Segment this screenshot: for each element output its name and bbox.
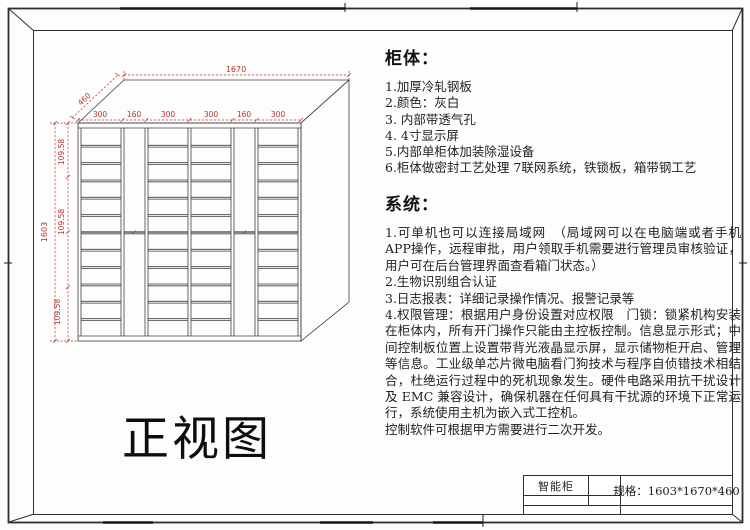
- title-block-empty-cell: [523, 505, 621, 515]
- dim-label-depth: 460: [76, 91, 93, 108]
- spec-section-system: 系统： 1.可单机也可以连接局域网 （局域网可以在电脑端或者手机APP操作，远程…: [385, 190, 741, 438]
- dim-label-segment-3: 109.58: [53, 299, 62, 325]
- spec-item: 2.颜色：灰白: [385, 95, 741, 111]
- view-title: 正视图: [122, 400, 272, 469]
- corner-diagonal: [732, 9, 742, 31]
- dim-label-col-3: 300: [161, 110, 176, 119]
- dim-label-col-6: 300: [271, 110, 286, 119]
- spec-item: 4. 4寸显示屏: [385, 128, 741, 144]
- spec-paragraph: 控制软件可根据甲方需要进行二次开发。: [385, 422, 741, 438]
- spec-item: 5.内部单柜体加装除湿设备: [385, 144, 741, 160]
- dim-label-total-width: 1670: [226, 65, 246, 74]
- spec-item: 6.柜体做密封工艺处理 7联网系统，铁锁板，箱带钢工艺: [385, 160, 741, 176]
- spec-cabinet-list: 1.加厚冷轧钢板 2.颜色：灰白 3. 内部带透气孔 4. 4寸显示屏 5.内部…: [385, 79, 741, 177]
- dim-label-segment-2: 109.58: [57, 209, 66, 235]
- spec-item: 1.加厚冷轧钢板: [385, 79, 741, 95]
- title-block-empty-cell: [620, 505, 733, 515]
- spec-item: 3. 内部带透气孔: [385, 112, 741, 128]
- dim-label-col-1: 300: [93, 110, 108, 119]
- dim-label-total-height: 1603: [40, 222, 49, 242]
- cabinet-side-face: [301, 80, 349, 341]
- corner-diagonal: [9, 9, 34, 31]
- title-block-spec: 规格：1603*1670*460: [620, 475, 733, 506]
- corner-diagonal: [732, 514, 742, 522]
- spec-paragraph: 4.权限管理：根据用户身份设置对应权限 门锁：锁紧机构安装在柜体内，所有开门操作…: [385, 307, 741, 422]
- dim-ticks-segments: [66, 121, 70, 343]
- dim-label-col-4: 300: [204, 110, 219, 119]
- cabinet-drawing: [78, 80, 349, 341]
- dim-label-segment-1: 109.58: [57, 139, 66, 165]
- title-block-product-name: 智能柜: [523, 475, 589, 496]
- dim-label-col-2: 160: [127, 110, 142, 119]
- spec-cabinet-heading: 柜体：: [385, 44, 741, 69]
- title-block: 智能柜 规格：1603*1670*460: [523, 475, 733, 515]
- spec-paragraph: 2.生物识别组合认证: [385, 274, 741, 290]
- spec-paragraph: 1.可单机也可以连接局域网 （局域网可以在电脑端或者手机APP操作，远程审批，用…: [385, 225, 741, 274]
- cabinet-shelves: [81, 145, 298, 320]
- spec-system-heading: 系统：: [385, 190, 741, 215]
- spec-section-cabinet: 柜体： 1.加厚冷轧钢板 2.颜色：灰白 3. 内部带透气孔 4. 4寸显示屏 …: [385, 44, 741, 177]
- spec-paragraph: 3.日志报表：详细记录操作情况、报警记录等: [385, 291, 741, 307]
- dim-label-col-5: 160: [237, 110, 252, 119]
- corner-diagonal: [9, 514, 34, 522]
